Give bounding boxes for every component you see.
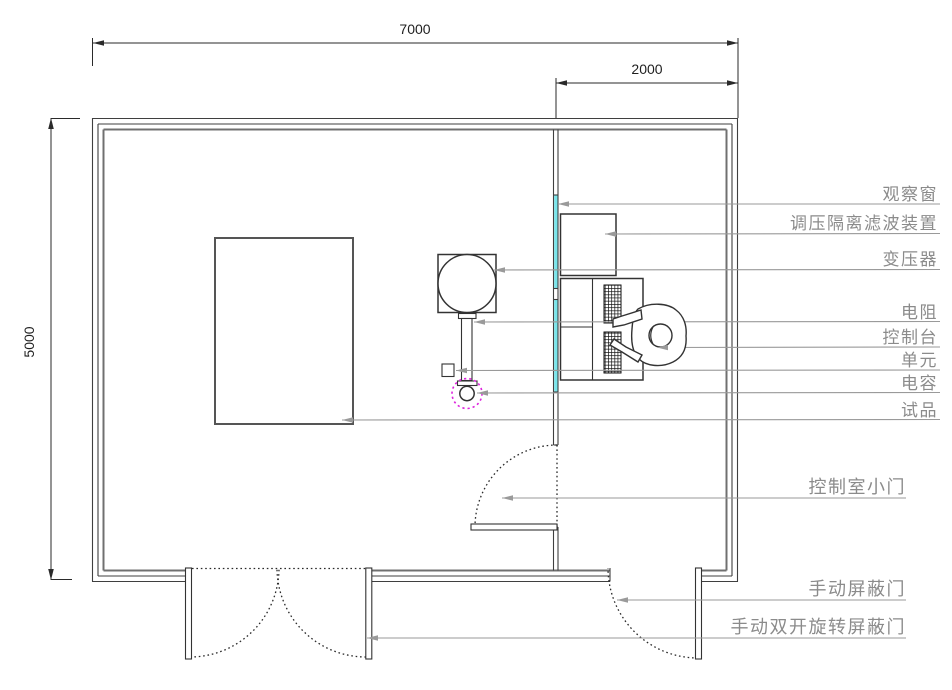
transformer [438,255,496,313]
door-leaf [186,568,192,659]
unit-box [442,364,454,377]
door-leaf [366,568,372,659]
leader-resistor [474,322,940,323]
label-resistor: 电阻 [901,304,938,322]
console-unit-panel [604,332,621,373]
leader-lines [342,201,940,641]
label-control-room-door: 控制室小门 [809,478,907,497]
double-rotating-door [186,568,372,659]
label-manual-shield-door: 手动屏蔽门 [809,580,907,599]
leader-transformer [494,270,940,271]
label-test-specimen: 试品 [901,402,938,420]
door-leaf [471,524,557,530]
test-specimen [215,238,353,424]
label-transformer: 变压器 [883,251,939,269]
dimension-7000 [93,38,739,118]
dimension-overall-width: 7000 [375,22,455,36]
leader-unit [456,370,940,371]
leader-filter-device [605,234,940,235]
observation-window-glass [554,300,558,393]
label-capacitor: 电容 [901,375,938,393]
observation-window-glass [554,195,558,289]
label-observation-window: 观察窗 [883,186,939,204]
filter-device [561,214,617,276]
resistor [458,314,478,386]
shielded-room-floor-plan: 7000 2000 5000 观察窗 调压隔离滤波装置 变压器 电阻 控制台 单… [0,0,952,690]
leader-test-specimen [342,420,940,421]
label-unit: 单元 [901,352,938,370]
control-room-door [471,445,557,530]
manual-shield-door [608,568,702,659]
console-desk [561,279,644,381]
door-leaf [696,568,702,659]
leader-console [657,347,940,348]
label-filter-device: 调压隔离滤波装置 [790,215,938,233]
partition-wall [553,130,559,571]
dimension-control-room-width: 2000 [607,62,687,76]
label-console: 控制台 [883,329,939,347]
leader-capacitor [477,393,940,394]
dimension-2000 [556,78,738,118]
dimension-5000 [48,118,80,580]
dimension-overall-depth: 5000 [22,302,36,382]
label-manual-double-rotating-shield-door: 手动双开旋转屏蔽门 [731,618,907,637]
